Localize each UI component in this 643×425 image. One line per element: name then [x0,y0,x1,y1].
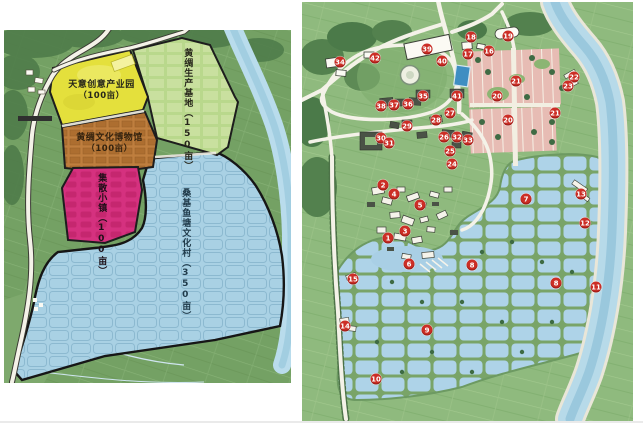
map-marker-12: 12 [580,218,591,229]
map-marker-16: 16 [484,46,495,57]
map-marker-15: 15 [348,274,359,285]
map-marker-27: 27 [445,108,456,119]
map-marker-13: 13 [576,189,587,200]
page-bottom-edge [0,421,643,423]
map-marker-42: 42 [370,53,381,64]
map-marker-29: 29 [402,121,413,132]
left-zoning-map: 天意创意产业园 （100亩） 黄绸生产基地（150亩） 黄绸文化博物馆 （100… [4,30,291,383]
map-marker-11: 11 [591,282,602,293]
map-marker-8: 8 [467,260,478,271]
map-marker-1: 1 [383,233,394,244]
map-marker-17: 17 [463,49,474,60]
map-marker-26: 26 [439,132,450,143]
map-marker-34: 34 [335,57,346,68]
map-marker-32: 32 [452,132,463,143]
map-marker-39: 39 [422,44,433,55]
map-marker-14: 14 [340,321,351,332]
screenshot: 天意创意产业园 （100亩） 黄绸生产基地（150亩） 黄绸文化博物馆 （100… [0,0,643,425]
map-marker-3: 3 [400,226,411,237]
right-site-plan-map: 1234567889101112131415161718192020212122… [302,2,633,421]
map-marker-7: 7 [521,194,532,205]
map-marker-20: 20 [492,91,503,102]
map-marker-10: 10 [371,374,382,385]
map-marker-40: 40 [437,56,448,67]
map-marker-6: 6 [404,259,415,270]
map-marker-33: 33 [463,135,474,146]
map-marker-18: 18 [466,32,477,43]
map-marker-41: 41 [452,91,463,102]
map-marker-24: 24 [447,159,458,170]
marker-layer: 1234567889101112131415161718192020212122… [302,2,633,421]
map-marker-23: 23 [563,81,574,92]
map-marker-21: 21 [511,76,522,87]
map-marker-19: 19 [503,31,514,42]
map-marker-31: 31 [384,138,395,149]
map-marker-35: 35 [418,91,429,102]
map-marker-8: 8 [551,278,562,289]
zone-distribution-town [62,167,142,243]
map-marker-4: 4 [389,189,400,200]
map-marker-36: 36 [403,99,414,110]
left-map-graphic [4,30,291,383]
map-marker-21: 21 [550,108,561,119]
map-marker-5: 5 [415,200,426,211]
map-marker-2: 2 [378,180,389,191]
map-marker-38: 38 [376,101,387,112]
map-marker-9: 9 [422,325,433,336]
map-marker-37: 37 [389,100,400,111]
map-marker-20: 20 [503,115,514,126]
map-marker-28: 28 [431,115,442,126]
map-marker-25: 25 [445,146,456,157]
